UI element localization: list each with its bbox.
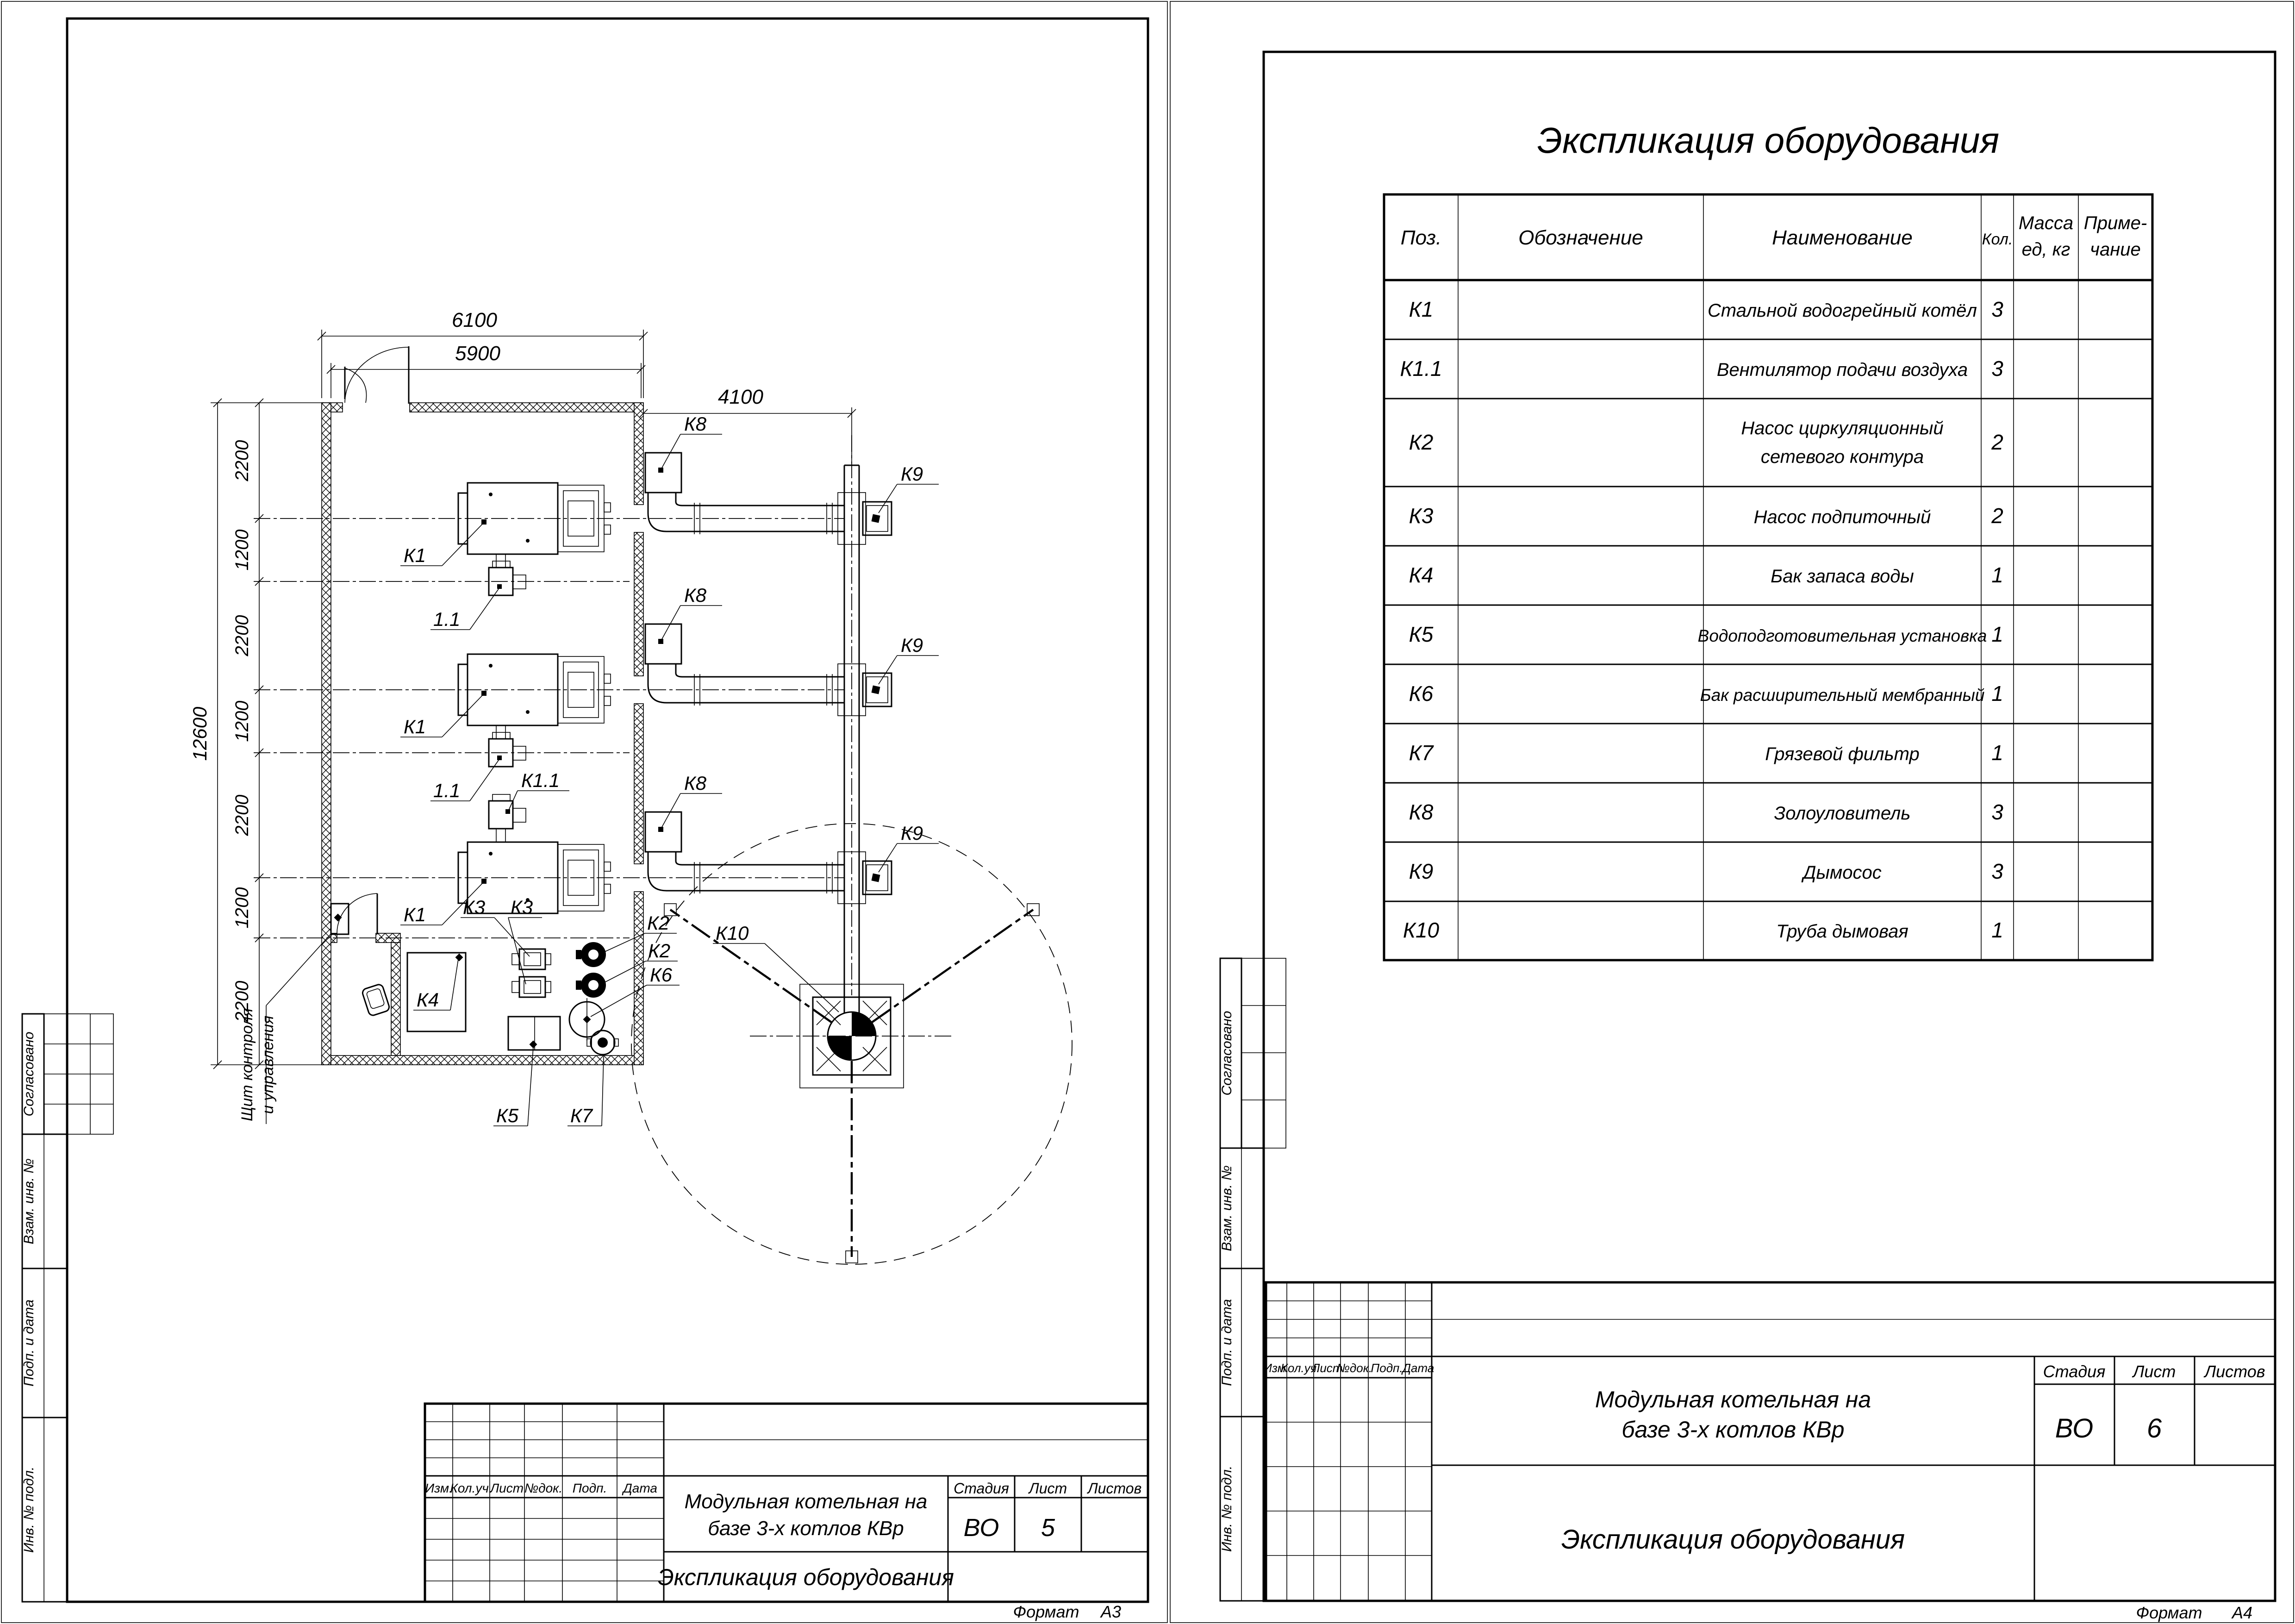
svg-text:5900: 5900 (455, 342, 500, 365)
svg-text:Дымосос: Дымосос (1801, 862, 1882, 883)
svg-text:К1: К1 (404, 716, 426, 737)
pump-k2-2 (576, 973, 606, 998)
rev-koluch: Кол.уч. (450, 1481, 492, 1495)
svg-text:4100: 4100 (718, 386, 763, 408)
svg-text:ед, кг: ед, кг (2022, 239, 2070, 260)
svg-text:1.1: 1.1 (433, 608, 460, 630)
svg-text:3: 3 (1991, 356, 2003, 381)
project-title-line2: базе 3-х котлов КВр (708, 1517, 904, 1540)
left-sheet: Согласовано Взам. инв. № Подп. и дата Ин… (0, 0, 1169, 1624)
svg-text:К4: К4 (1409, 563, 1434, 587)
rev-podp: Подп. (573, 1481, 607, 1495)
svg-text:Согласовано: Согласовано (1219, 1011, 1235, 1096)
svg-text:Листов: Листов (2203, 1362, 2265, 1381)
svg-text:1200: 1200 (232, 530, 252, 571)
svg-text:К5: К5 (496, 1105, 519, 1126)
svg-text:базе 3-х котлов КВр: базе 3-х котлов КВр (1621, 1417, 1844, 1443)
svg-text:Бак расширительный мембранный: Бак расширительный мембранный (1700, 686, 1985, 705)
sheet-label: Лист (1028, 1480, 1067, 1497)
rev-list: Лист (489, 1481, 524, 1495)
svg-text:2200: 2200 (232, 795, 252, 837)
pump-k3-2 (512, 977, 551, 997)
side-replace-inv-label: Взам. инв. № (21, 1158, 37, 1244)
svg-text:3: 3 (1991, 800, 2003, 824)
svg-text:К4: К4 (417, 989, 439, 1011)
page-edge (1, 1, 1167, 1623)
expansion-tank-k6 (569, 998, 605, 1041)
svg-text:6: 6 (2147, 1413, 2162, 1443)
svg-text:чание: чание (2090, 239, 2140, 260)
svg-text:К7: К7 (570, 1105, 593, 1126)
svg-text:2200: 2200 (232, 615, 252, 657)
svg-text:Бак запаса воды: Бак запаса воды (1771, 566, 1914, 587)
side-sign-date-label: Подп. и дата (21, 1299, 37, 1387)
svg-text:Водоподготовительная установка: Водоподготовительная установка (1698, 626, 1987, 645)
svg-text:К3: К3 (511, 896, 533, 918)
svg-text:Стадия: Стадия (2043, 1362, 2106, 1381)
svg-text:Обозначение: Обозначение (1518, 226, 1643, 249)
svg-text:Взам. инв. №: Взам. инв. № (1219, 1165, 1235, 1251)
svg-text:К5: К5 (1409, 622, 1434, 646)
svg-text:1: 1 (1991, 918, 2003, 942)
flue-row-2 (645, 624, 892, 716)
axes (254, 435, 954, 1036)
filter-k7 (587, 1031, 618, 1055)
svg-text:1.1: 1.1 (433, 780, 460, 801)
svg-text:К8: К8 (684, 772, 707, 794)
svg-text:Труба дымовая: Труба дымовая (1776, 921, 1908, 942)
side-stamp-column: Согласовано Взам. инв. № Подп. и дата Ин… (1219, 958, 1286, 1601)
svg-text:К3: К3 (1409, 504, 1434, 528)
water-treatment-k5 (508, 1017, 560, 1050)
svg-text:Вентилятор подачи воздуха: Вентилятор подачи воздуха (1717, 360, 1968, 380)
pump-k3-1 (512, 949, 551, 969)
flue-row-1 (645, 453, 892, 544)
format-label: Формат (1013, 1602, 1079, 1621)
svg-text:Стальной водогрейный котёл: Стальной водогрейный котёл (1708, 300, 1977, 321)
svg-text:К10: К10 (716, 922, 749, 944)
doc-name: Экспликация оборудования (658, 1564, 954, 1590)
svg-text:Насос циркуляционный: Насос циркуляционный (1741, 418, 1943, 438)
svg-text:Лист: Лист (2132, 1362, 2176, 1381)
svg-text:ВО: ВО (2055, 1413, 2094, 1443)
svg-text:12600: 12600 (189, 706, 211, 761)
stage-label: Стадия (954, 1480, 1009, 1497)
svg-text:№док.: №док. (1337, 1361, 1372, 1375)
svg-text:Масса: Масса (2019, 213, 2073, 233)
svg-text:1200: 1200 (232, 887, 252, 929)
svg-text:Поз.: Поз. (1401, 226, 1442, 249)
svg-text:Грязевой фильтр: Грязевой фильтр (1765, 744, 1920, 764)
svg-text:Модульная котельная на: Модульная котельная на (1595, 1387, 1871, 1412)
svg-text:1: 1 (1991, 681, 2003, 706)
fan-2 (489, 725, 526, 767)
svg-text:К8: К8 (684, 413, 707, 435)
svg-text:К7: К7 (1409, 741, 1434, 765)
svg-text:К10: К10 (1403, 918, 1440, 942)
side-agreed-label: Согласовано (21, 1032, 37, 1117)
svg-text:К9: К9 (1409, 859, 1434, 883)
rev-ndok: №док. (524, 1481, 562, 1495)
svg-text:сетевого контура: сетевого контура (1761, 447, 1924, 467)
svg-text:К8: К8 (684, 584, 707, 606)
svg-text:К3: К3 (463, 896, 485, 918)
side-inv-label: Инв. № подл. (21, 1467, 37, 1553)
svg-text:К2: К2 (648, 940, 670, 962)
pump-k2-1 (576, 942, 606, 967)
svg-text:А4: А4 (2231, 1603, 2252, 1622)
title-block-right-sheet: Изм. Кол.уч. Лист №док. Подп. Дата Модул… (1263, 1282, 2275, 1601)
svg-text:3: 3 (1991, 297, 2003, 321)
table-title: Экспликация оборудования (1537, 120, 1999, 161)
svg-text:К9: К9 (901, 463, 923, 485)
rev-data: Дата (622, 1481, 657, 1495)
svg-text:3: 3 (1991, 859, 2003, 883)
svg-text:1: 1 (1991, 622, 2003, 646)
svg-text:1: 1 (1991, 741, 2003, 765)
drawing-canvas: Согласовано Взам. инв. № Подп. и дата Ин… (0, 0, 2295, 1624)
svg-text:2: 2 (1991, 504, 2003, 528)
spec-table: Поз. Обозначение Наименование Кол. Масса… (1384, 194, 2152, 960)
svg-text:К1: К1 (404, 544, 426, 566)
fan-3 (489, 794, 526, 842)
sheets-label: Листов (1087, 1480, 1142, 1497)
svg-text:К2: К2 (1409, 430, 1434, 454)
svg-text:Инв. № подл.: Инв. № подл. (1219, 1466, 1235, 1552)
svg-text:К1.1: К1.1 (521, 769, 560, 791)
right-sheet: Согласовано Взам. инв. № Подп. и дата Ин… (1169, 0, 2295, 1624)
svg-text:К9: К9 (901, 634, 923, 656)
svg-text:Наименование: Наименование (1772, 226, 1913, 249)
svg-text:Подп. и дата: Подп. и дата (1219, 1299, 1235, 1386)
svg-text:Приме-: Приме- (2084, 213, 2147, 233)
svg-text:К1: К1 (404, 904, 426, 925)
rev-izm: Изм. (425, 1481, 453, 1495)
svg-text:К6: К6 (650, 964, 673, 986)
svg-text:К1.1: К1.1 (1400, 356, 1442, 381)
sheet-number: 5 (1041, 1514, 1055, 1542)
title-block-left-sheet: Изм. Кол.уч. Лист №док. Подп. Дата Модул… (425, 1404, 1148, 1602)
sheet-frame (67, 19, 1148, 1602)
svg-text:К2: К2 (647, 912, 669, 934)
stage-value: ВО (964, 1514, 999, 1542)
side-stamp-column: Согласовано Взам. инв. № Подп. и дата Ин… (21, 1014, 113, 1602)
svg-text:2: 2 (1991, 430, 2003, 454)
svg-text:К8: К8 (1409, 800, 1434, 824)
svg-text:6100: 6100 (452, 309, 497, 331)
fan-1 (489, 554, 526, 595)
svg-text:Дата: Дата (1401, 1361, 1434, 1375)
svg-text:К6: К6 (1409, 681, 1434, 706)
svg-text:1200: 1200 (232, 701, 252, 742)
room-door (337, 893, 377, 934)
svg-text:К9: К9 (901, 822, 923, 844)
svg-text:Экспликация оборудования: Экспликация оборудования (1561, 1524, 1905, 1555)
entrance-door (345, 346, 409, 404)
svg-text:К1: К1 (1409, 297, 1434, 321)
format-value: А3 (1100, 1602, 1121, 1621)
svg-text:Кол.: Кол. (1982, 231, 2013, 248)
svg-text:2200: 2200 (232, 981, 252, 1023)
flue-row-3 (645, 812, 892, 904)
svg-text:Формат: Формат (2136, 1603, 2202, 1622)
svg-text:Насос подпиточный: Насос подпиточный (1754, 507, 1931, 527)
sink (362, 983, 390, 1016)
svg-text:1: 1 (1991, 563, 2003, 587)
svg-text:Золоуловитель: Золоуловитель (1774, 803, 1911, 824)
project-title-line1: Модульная котельная на (685, 1490, 928, 1513)
svg-text:2200: 2200 (232, 440, 252, 482)
dimensions: 6100 5900 4100 2200 1200 2200 1200 2200 … (189, 309, 856, 1069)
svg-text:Подп.: Подп. (1371, 1361, 1403, 1375)
